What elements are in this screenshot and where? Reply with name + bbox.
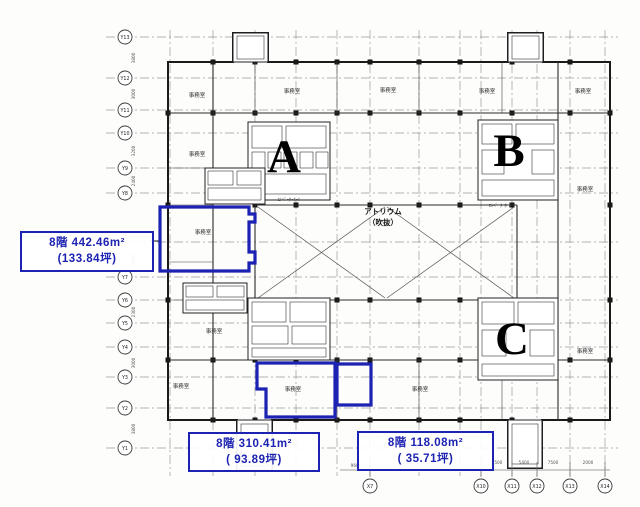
room-label: 事務室 — [195, 228, 212, 236]
highlight-area-118 — [337, 364, 371, 405]
x-grid-bubble-label: X13 — [565, 484, 574, 490]
floorplan-page: Y13Y12Y11Y10Y9Y8Y7Y6Y5Y4Y3Y2Y1X7X10X11X1… — [0, 0, 640, 507]
area-callout-442-line1: 8階 442.46m² — [22, 235, 152, 251]
highlight-area-442 — [160, 207, 255, 271]
room-label: 事務室 — [479, 87, 496, 95]
x-grid-bubble-label: X7 — [367, 484, 373, 490]
atrium-label: アトリウム — [364, 207, 402, 216]
elevator-hall-label: ｴﾚﾍﾞｰﾀｰﾎｰﾙ — [489, 202, 512, 209]
y-grid-bubble-label: Y13 — [119, 35, 129, 41]
y-grid-bubble-label: Y4 — [121, 345, 128, 351]
room-label: 事務室 — [206, 327, 223, 335]
dimension-text: 3200 — [131, 145, 136, 156]
y-grid-bubble-label: Y8 — [121, 191, 128, 197]
room-label: 事務室 — [577, 347, 594, 355]
dimension-text: 7500 — [548, 460, 559, 465]
y-grid-bubble-label: Y7 — [121, 275, 128, 281]
y-grid-bubble-label: Y12 — [119, 76, 129, 82]
y-grid-bubble-label: Y2 — [121, 406, 128, 412]
area-callout-310: 8階 310.41m² ( 93.89坪) — [188, 432, 320, 472]
area-callout-118-line2: ( 35.71坪) — [359, 451, 492, 467]
room-label: 事務室 — [189, 150, 206, 158]
stair-tower-top-left — [233, 33, 268, 62]
area-callout-310-line2: ( 93.89坪) — [190, 452, 318, 468]
x-grid-bubble-label: X12 — [532, 484, 541, 490]
section-letter-C: C — [495, 313, 529, 365]
room-label: 事務室 — [285, 385, 302, 393]
area-callout-118: 8階 118.08m² ( 35.71坪) — [357, 431, 494, 471]
x-grid-bubble-label: X11 — [507, 484, 516, 490]
elevator-hall-label: ｴﾚﾍﾞｰﾀｰﾎｰﾙ — [278, 196, 301, 203]
y-grid-bubble-label: Y9 — [121, 166, 128, 172]
section-letter-B: B — [493, 125, 524, 177]
core-left-lower — [183, 283, 247, 313]
y-grid-bubble-label: Y3 — [121, 375, 128, 381]
stair-tower-top-right — [508, 33, 543, 62]
dimension-text: 3000 — [131, 88, 136, 99]
dimension-text: 2300 — [131, 306, 136, 317]
atrium-label: （吹抜） — [368, 217, 398, 227]
y-grid-bubble-label: Y5 — [121, 321, 128, 327]
dimension-text: 2000 — [583, 460, 594, 465]
room-label: 事務室 — [284, 87, 301, 95]
dimension-text: 2400 — [131, 175, 136, 186]
section-letter-A: A — [267, 131, 301, 183]
dimension-text: 3800 — [131, 423, 136, 434]
x-grid-bubble-label: X14 — [600, 484, 609, 490]
dimension-text: 5400 — [519, 460, 530, 465]
room-label: 事務室 — [189, 91, 206, 99]
area-callout-118-line1: 8階 118.08m² — [359, 435, 492, 451]
area-callout-442-line2: (133.84坪) — [22, 251, 152, 267]
dimension-text: 3000 — [131, 357, 136, 368]
y-grid-bubble-label: Y6 — [121, 298, 128, 304]
y-grid-bubble-label: Y10 — [119, 131, 129, 137]
room-label: 事務室 — [173, 382, 190, 390]
area-callout-442: 8階 442.46m² (133.84坪) — [20, 231, 154, 272]
grid-layer — [106, 30, 618, 476]
room-label: 事務室 — [577, 185, 594, 193]
outer-wall — [168, 33, 610, 470]
room-label: 事務室 — [380, 86, 397, 94]
y-grid-bubble-label: Y11 — [119, 108, 129, 114]
y-grid-bubble-label: Y1 — [121, 446, 128, 452]
x-grid-bubble-label: X10 — [476, 484, 485, 490]
core-a-lower — [248, 298, 330, 360]
area-callout-310-line1: 8階 310.41m² — [190, 436, 318, 452]
building-outline — [150, 33, 610, 470]
dimension-text: 3800 — [131, 52, 136, 63]
room-label: 事務室 — [575, 87, 592, 95]
room-label: 事務室 — [412, 385, 429, 393]
core-left-upper — [205, 168, 265, 204]
